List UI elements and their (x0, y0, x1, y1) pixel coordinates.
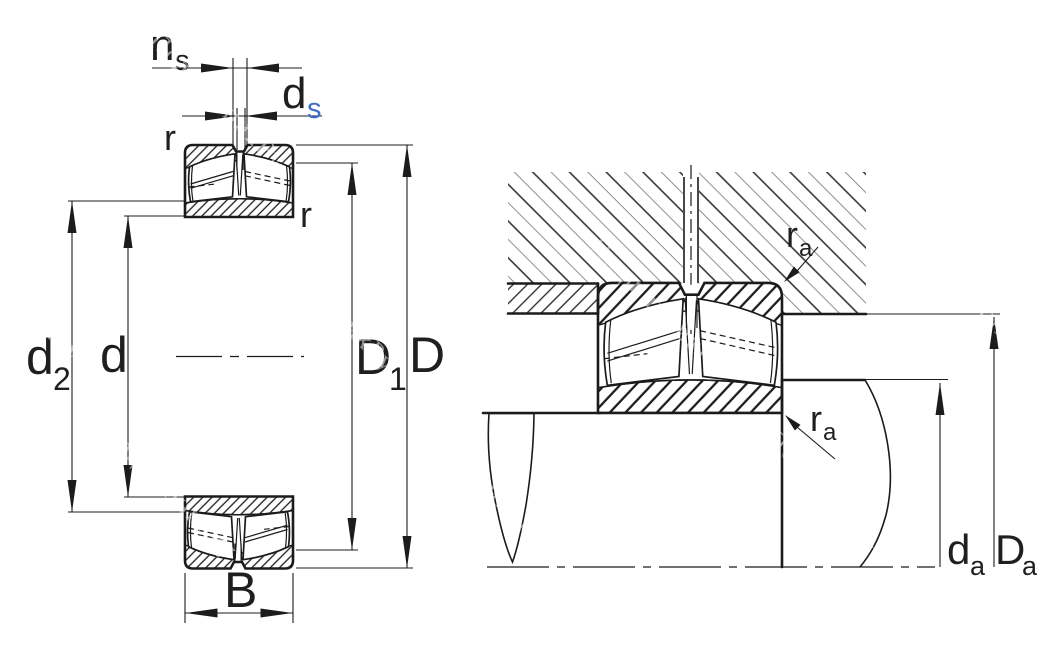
dim-label-da-main: d (947, 526, 970, 573)
dim-label-Da-main: D (995, 526, 1025, 573)
housing-shoulder (508, 284, 598, 314)
dim-label-ra-housing-sub: a (799, 235, 813, 262)
bearing-dimension-drawing: n s d s r r d 2 d (0, 0, 1050, 650)
dim-label-da-sub: a (970, 551, 986, 581)
dim-label-Da-sub: a (1022, 551, 1038, 581)
dim-label-ds-sub: s (307, 93, 322, 125)
watermark-text: ПодшипникРу (428, 426, 577, 575)
drawing-canvas: n s d s r r d 2 d (0, 0, 1050, 650)
dim-label-ra-housing-main: r (786, 214, 798, 255)
watermark-text: ПодшипникРу (916, 242, 1050, 391)
dim-label-ra-shaft-sub: a (823, 419, 837, 446)
dim-label-ra-shaft-main: r (810, 398, 822, 439)
dim-label-B: B (224, 562, 257, 618)
dim-label-ds-main: d (282, 69, 306, 118)
watermark-text: ПодшипникРу (254, 229, 403, 378)
watermark-text: ПодшипникРу (454, 32, 603, 181)
dim-label-r-inner: r (300, 194, 312, 235)
dim-label-d: d (100, 327, 128, 383)
right-figure-mounting: r a r a d a D a (483, 165, 1038, 581)
watermark-text: ПодшипникРу (748, 29, 897, 178)
dim-label-r-outer: r (164, 117, 176, 158)
dim-B: B (185, 562, 293, 623)
dim-label-D: D (409, 327, 445, 383)
watermark-text: ПодшипникРу (96, 416, 245, 565)
